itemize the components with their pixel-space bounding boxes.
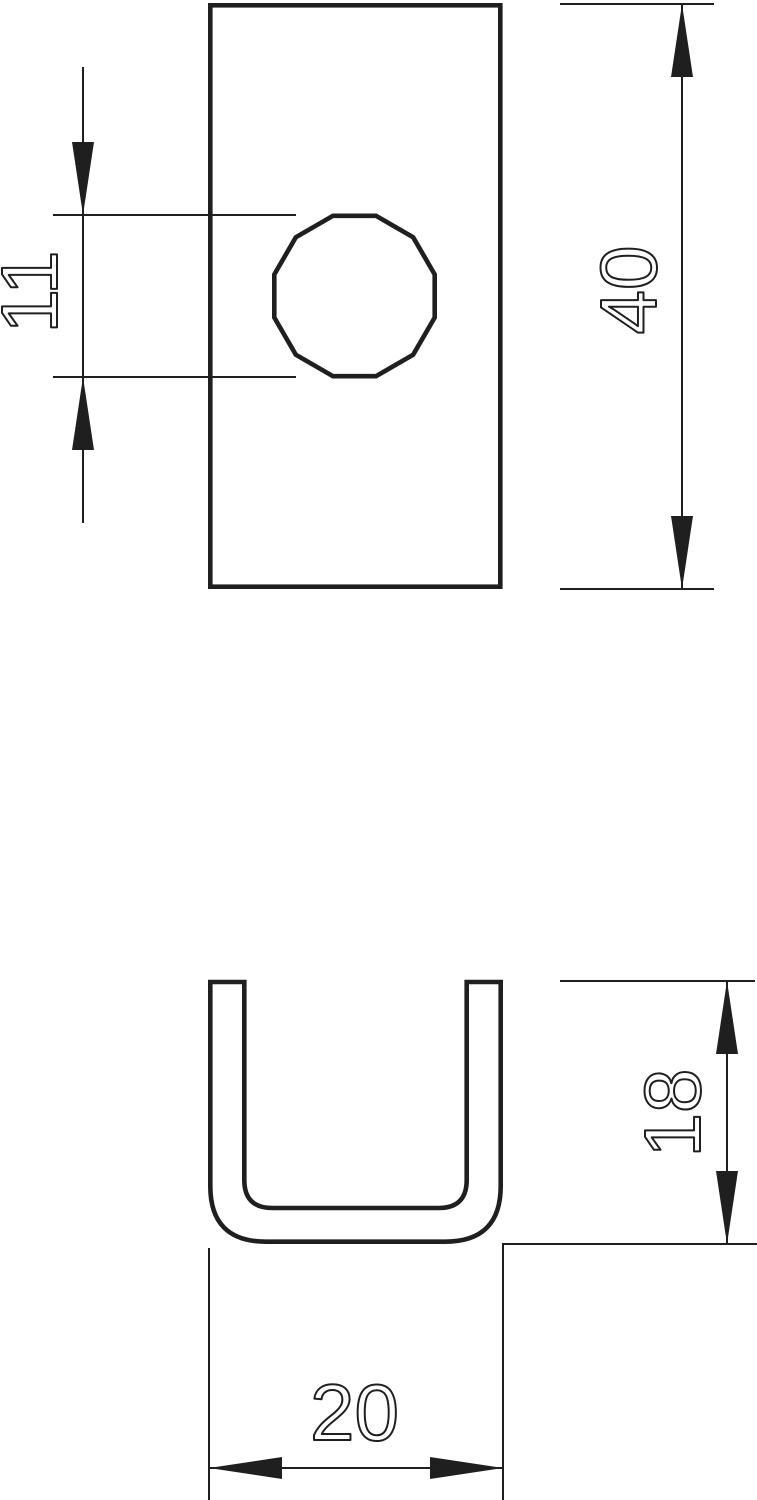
dimension-hole-diameter: 11 <box>0 67 296 523</box>
arrowhead-down-icon <box>671 516 693 589</box>
arrowhead-up-icon <box>671 4 693 77</box>
dimension-profile-height: 18 <box>502 981 757 1244</box>
dim-label-profile-width: 20 <box>310 1368 399 1457</box>
arrowhead-down-icon <box>716 1171 738 1244</box>
profile-view <box>210 982 500 1242</box>
drawing-sheet: 11 40 18 <box>0 0 757 1500</box>
dim-label-plate-height: 40 <box>584 246 673 335</box>
arrowhead-up-icon <box>72 377 94 450</box>
dim-label-profile-height: 18 <box>628 1069 717 1158</box>
arrowhead-left-icon <box>209 1457 282 1479</box>
channel-outline <box>210 982 500 1242</box>
dim-label-hole-diameter: 11 <box>0 250 74 333</box>
front-view <box>210 5 500 586</box>
hole-outline <box>274 216 434 376</box>
technical-drawing: 11 40 18 <box>0 0 757 1500</box>
dimension-profile-width: 20 <box>209 1244 503 1500</box>
arrowhead-down-icon <box>72 142 94 215</box>
dimension-plate-height: 40 <box>560 4 714 589</box>
plate-outline <box>210 5 500 586</box>
arrowhead-up-icon <box>716 981 738 1054</box>
arrowhead-right-icon <box>430 1457 503 1479</box>
